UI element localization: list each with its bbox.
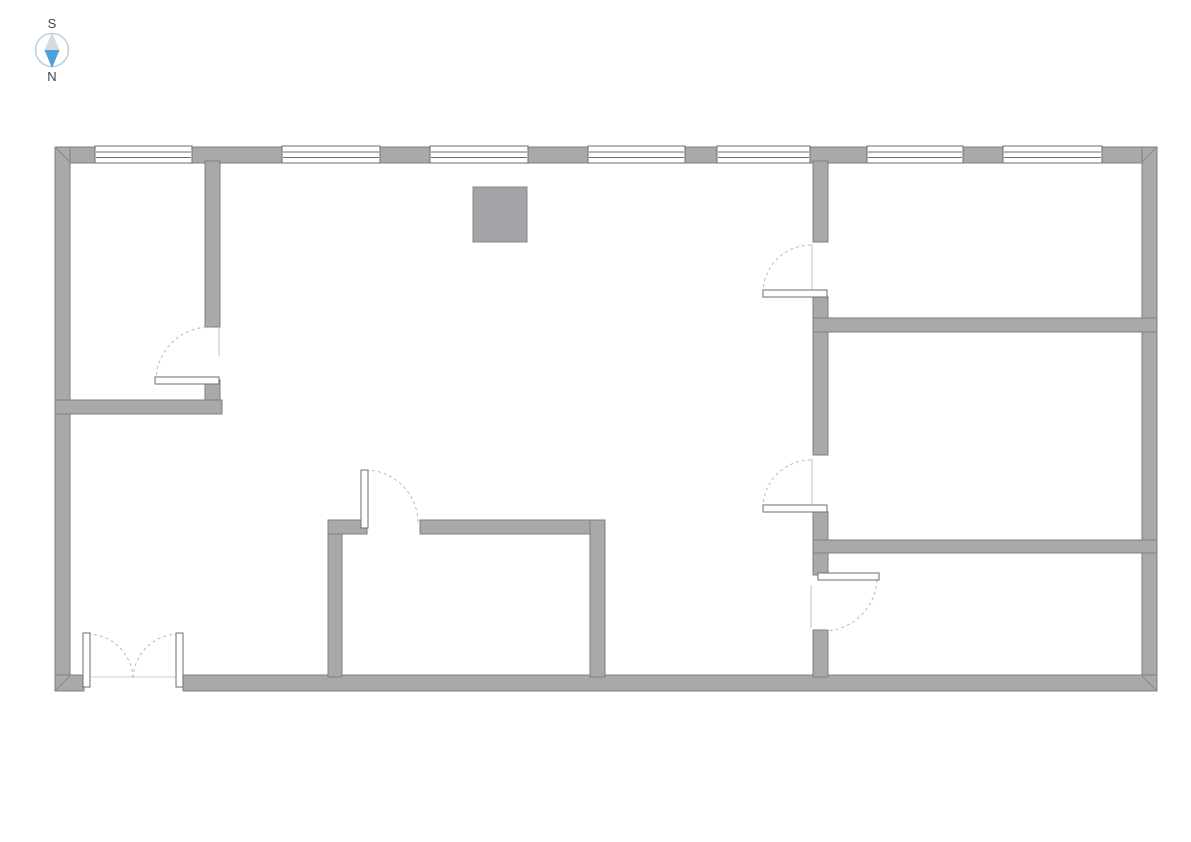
window-1-glass (95, 146, 192, 163)
interior-wall-left-room-bottom (55, 400, 222, 414)
door-left-room-swing-arc (156, 327, 210, 381)
interior-wall-middle-room-left (328, 520, 342, 677)
interior-wall-right-rooms-divider-lower (813, 540, 1157, 553)
door-left-room-leaf (155, 377, 219, 384)
exterior-wall-left (55, 147, 70, 691)
floor-plan-page: SN (0, 0, 1191, 842)
exterior-wall-right (1142, 147, 1157, 691)
entry-double-door-left-swing-arc (88, 634, 133, 678)
exterior-wall-bottom-west (55, 675, 84, 691)
interior-wall-middle-room-right (590, 520, 605, 677)
interior-wall-middle-room-top-east (420, 520, 605, 534)
door-right-lower-leaf (818, 573, 879, 580)
interior-wall-right-vertical-seg1 (813, 161, 828, 242)
entry-double-door-right-swing-arc (133, 634, 178, 678)
interior-wall-right-rooms-divider-upper (813, 318, 1157, 332)
interior-wall-right-vertical-seg4 (813, 630, 828, 677)
window-5-glass (717, 146, 810, 163)
compass-south-label: S (48, 16, 57, 31)
window-3-glass (430, 146, 528, 163)
door-middle-room-leaf (361, 470, 368, 528)
door-right-lower-swing-arc (823, 580, 877, 631)
door-middle-room-swing-arc (366, 470, 418, 522)
door-right-upper-leaf (763, 290, 827, 297)
door-right-middle-leaf (763, 505, 827, 512)
window-7-glass (1003, 146, 1102, 163)
floor-plan-canvas: SN (0, 0, 1191, 842)
door-right-middle-swing-arc (763, 460, 811, 508)
door-right-upper-swing-arc (763, 245, 811, 293)
window-2-glass (282, 146, 380, 163)
entry-double-door-right-leaf (176, 633, 183, 687)
entry-double-door-left-leaf (83, 633, 90, 687)
column-block (473, 187, 527, 242)
interior-wall-left-room-vertical (205, 161, 220, 327)
window-4-glass (588, 146, 685, 163)
window-6-glass (867, 146, 963, 163)
compass-north-label: N (47, 69, 56, 84)
